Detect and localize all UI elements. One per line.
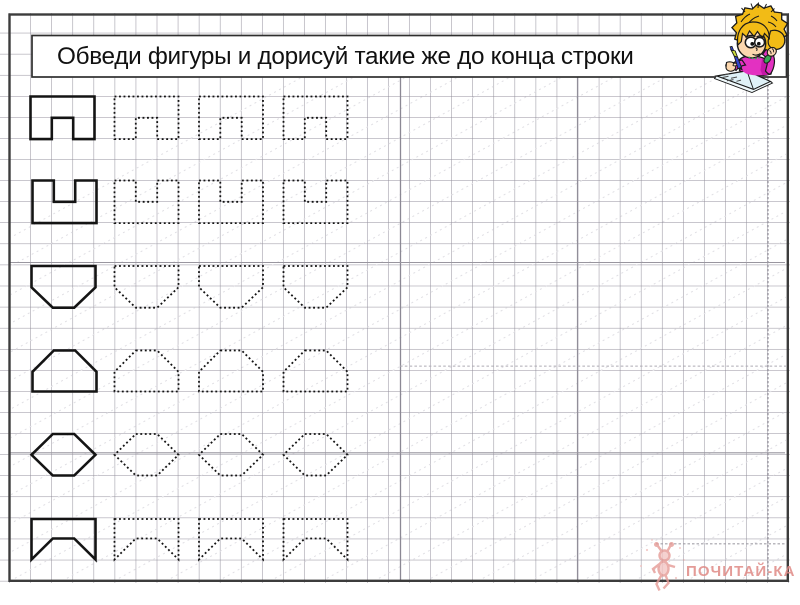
svg-text:Обведи фигуры и дорисуй такие: Обведи фигуры и дорисуй такие же до конц… bbox=[57, 43, 634, 70]
svg-text:ПОЧИТАЙ-КА: ПОЧИТАЙ-КА bbox=[686, 562, 796, 580]
